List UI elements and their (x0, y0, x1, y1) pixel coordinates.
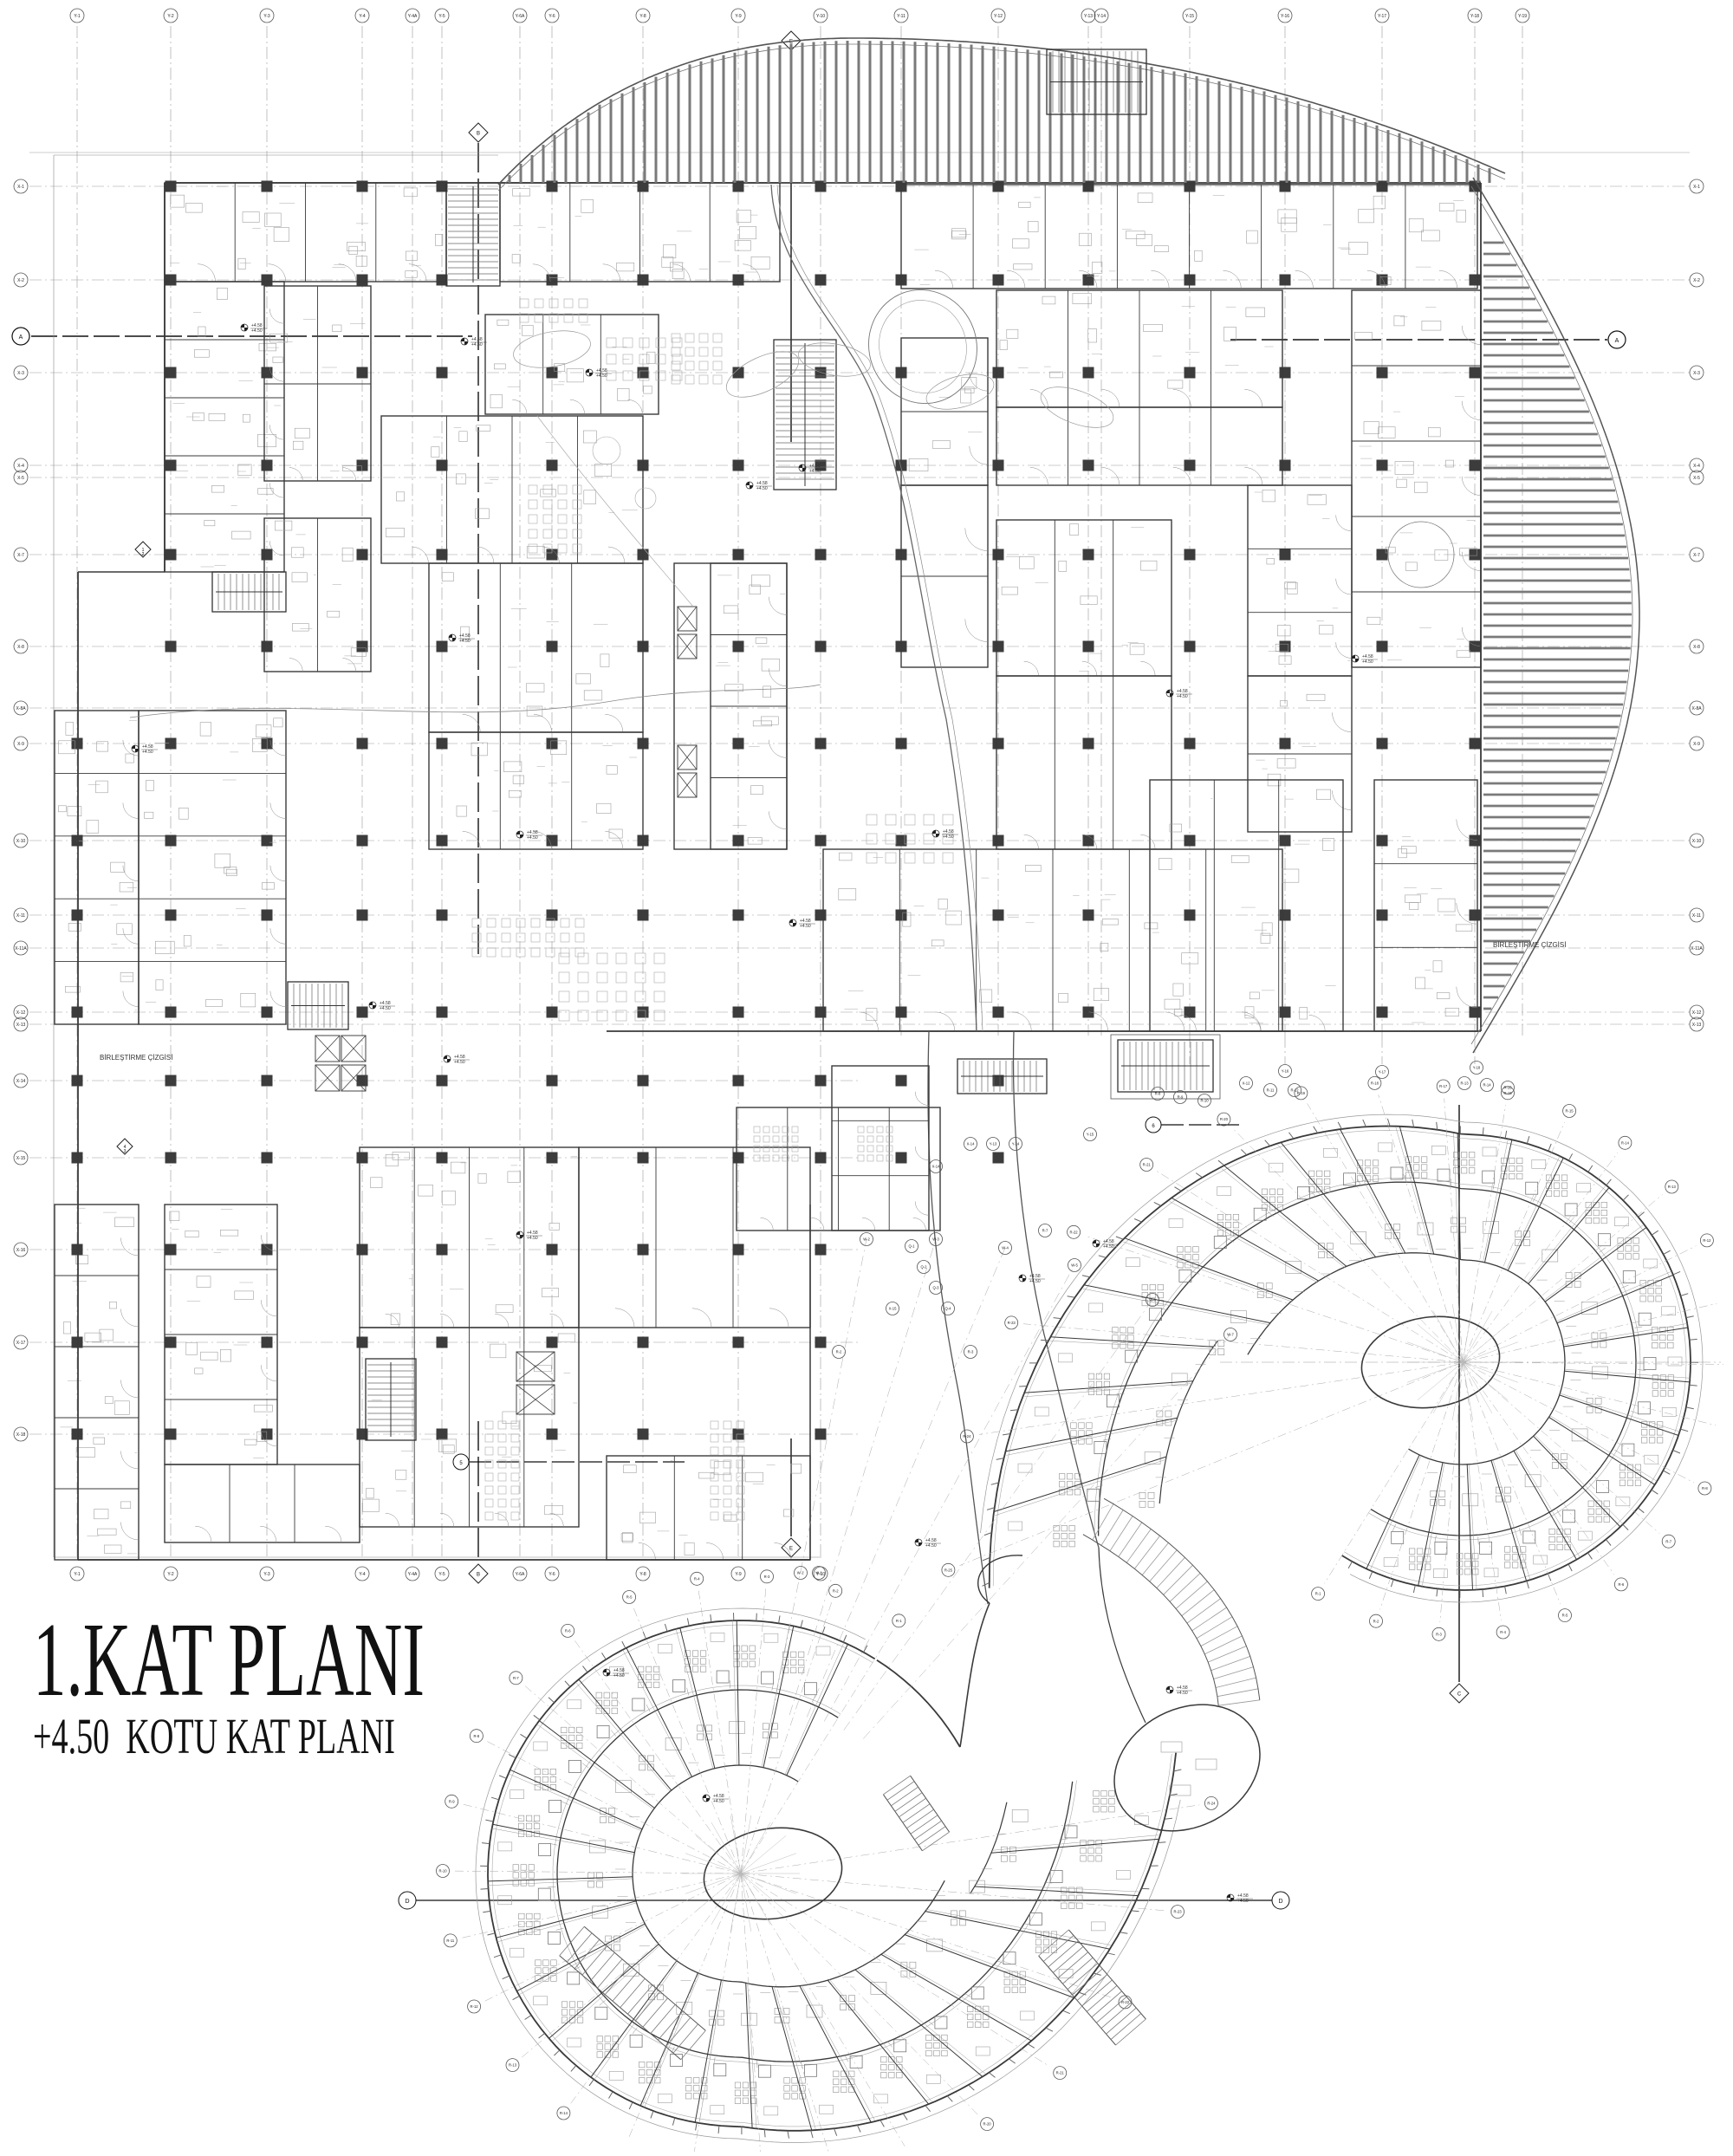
svg-text:Y-9: Y-9 (735, 1572, 742, 1577)
svg-text:Y-14: Y-14 (1012, 1142, 1020, 1146)
svg-text:R-7: R-7 (1665, 1539, 1671, 1543)
svg-text:R-14: R-14 (1483, 1083, 1491, 1088)
svg-text:X-3: X-3 (1693, 371, 1700, 376)
svg-text:R-6: R-6 (1619, 1582, 1625, 1587)
svg-text:R-15: R-15 (1566, 1109, 1574, 1114)
svg-text:Y-17: Y-17 (1378, 14, 1386, 19)
svg-text:R-11: R-11 (446, 1938, 454, 1943)
svg-text:R-12: R-12 (1290, 1088, 1299, 1093)
svg-text:Y-16: Y-16 (1281, 14, 1289, 19)
svg-text:R-21: R-21 (1056, 2071, 1065, 2075)
svg-text:Y-6A: Y-6A (516, 1572, 525, 1577)
svg-text:R-3: R-3 (1436, 1632, 1442, 1636)
svg-text:X-15: X-15 (16, 1156, 26, 1161)
svg-text:X-11A: X-11A (15, 946, 27, 951)
svg-text:+4.50: +4.50 (713, 1799, 724, 1804)
svg-text:X-8A: X-8A (16, 706, 26, 711)
svg-text:+4.50: +4.50 (142, 750, 153, 755)
svg-text:Q-2: Q-2 (921, 1265, 928, 1270)
svg-text:X-11: X-11 (1692, 913, 1701, 919)
svg-text:D: D (405, 1899, 409, 1905)
svg-text:R-2: R-2 (1373, 1619, 1379, 1623)
svg-text:X-9: X-9 (17, 742, 24, 747)
svg-text:A: A (19, 334, 23, 341)
svg-text:Y-4: Y-4 (359, 1572, 366, 1577)
svg-text:Y-10: Y-10 (816, 14, 825, 19)
svg-text:R-1: R-1 (896, 1619, 902, 1623)
svg-text:E: E (789, 1546, 793, 1551)
svg-text:R-24: R-24 (1207, 1802, 1216, 1806)
svg-text:R-23: R-23 (1173, 1910, 1182, 1914)
svg-text:+4.50: +4.50 (1177, 694, 1188, 699)
svg-text:+4.50: +4.50 (251, 328, 263, 334)
svg-text:Y-15: Y-15 (1087, 1133, 1094, 1137)
svg-text:X-18: X-18 (16, 1432, 26, 1438)
svg-text:R-13: R-13 (509, 2063, 517, 2068)
svg-text:R-3: R-3 (764, 1575, 770, 1579)
svg-text:+4.50: +4.50 (943, 834, 954, 840)
svg-text:Y-2: Y-2 (167, 1572, 174, 1577)
svg-text:+4.50: +4.50 (1103, 1244, 1114, 1250)
svg-text:1.KAT PLANI: 1.KAT PLANI (33, 1601, 425, 1718)
svg-text:Y-6: Y-6 (548, 1572, 555, 1577)
svg-text:R-4: R-4 (694, 1576, 700, 1581)
svg-text:Y-16: Y-16 (1282, 1069, 1289, 1074)
svg-text:R-4: R-4 (1500, 1630, 1506, 1634)
svg-text:R-13: R-13 (1460, 1081, 1469, 1086)
svg-text:R-3: R-3 (968, 1350, 974, 1354)
svg-text:+4.50 KOTU KAT PLANI: +4.50 KOTU KAT PLANI (33, 1708, 395, 1764)
svg-text:Y-5: Y-5 (438, 14, 445, 19)
svg-text:Q-1: Q-1 (909, 1244, 916, 1249)
svg-text:Y-12: Y-12 (994, 14, 1003, 19)
svg-text:Y-5: Y-5 (438, 1572, 445, 1577)
svg-text:+4.50: +4.50 (1362, 659, 1373, 665)
svg-text:Y-13: Y-13 (1084, 14, 1093, 19)
svg-text:Y-4A: Y-4A (408, 1572, 418, 1577)
svg-text:Y-13: Y-13 (990, 1142, 997, 1146)
svg-text:Y-1: Y-1 (74, 1572, 81, 1577)
svg-text:X-2: X-2 (1693, 278, 1700, 283)
svg-text:X-4: X-4 (1693, 464, 1700, 469)
svg-text:X-14: X-14 (967, 1142, 976, 1146)
svg-text:R-10: R-10 (1200, 1099, 1209, 1103)
svg-text:+4.50: +4.50 (809, 469, 821, 474)
svg-text:+4.50: +4.50 (471, 342, 483, 347)
svg-text:R-18: R-18 (1371, 1081, 1379, 1086)
svg-text:Y-2: Y-2 (167, 14, 174, 19)
svg-text:+4.50: +4.50 (527, 1236, 538, 1241)
svg-text:R-21: R-21 (1143, 1163, 1152, 1167)
svg-text:W-6: W-6 (1149, 1298, 1156, 1302)
svg-text:X-15: X-15 (889, 1307, 898, 1311)
svg-text:Y-6A: Y-6A (516, 14, 525, 19)
svg-text:R-14: R-14 (560, 2111, 568, 2115)
svg-text:R-22: R-22 (1070, 1230, 1079, 1234)
svg-text:X-4: X-4 (17, 464, 24, 469)
svg-text:+4.50: +4.50 (527, 835, 538, 841)
svg-text:Y-17: Y-17 (1379, 1070, 1386, 1075)
svg-text:D: D (1278, 1899, 1282, 1905)
svg-text:Y-11: Y-11 (897, 14, 905, 19)
svg-text:Q-3: Q-3 (933, 1286, 940, 1290)
svg-text:R-25: R-25 (944, 1568, 953, 1572)
svg-text:X-1: X-1 (17, 185, 24, 190)
svg-text:X-1: X-1 (1693, 185, 1700, 190)
svg-text:R-14: R-14 (1621, 1140, 1630, 1145)
svg-text:R-5: R-5 (626, 1595, 633, 1600)
svg-text:X-13: X-13 (16, 1023, 26, 1028)
svg-text:BİRLEŞTİRME ÇİZGİSİ: BİRLEŞTİRME ÇİZGİSİ (1493, 941, 1566, 949)
svg-text:W-4: W-4 (1002, 1246, 1009, 1250)
svg-text:Y-19: Y-19 (1518, 14, 1527, 19)
svg-text:R-17: R-17 (1439, 1084, 1448, 1088)
svg-text:X-7: X-7 (17, 553, 24, 558)
svg-text:X-14: X-14 (16, 1079, 26, 1084)
svg-text:Y-18: Y-18 (1473, 1066, 1481, 1070)
svg-text:R-9: R-9 (449, 1799, 455, 1803)
svg-text:B: B (477, 131, 480, 136)
svg-text:R-7: R-7 (1042, 1229, 1048, 1233)
svg-text:R-11: R-11 (1267, 1088, 1275, 1093)
svg-text:X-12: X-12 (1243, 1081, 1251, 1086)
svg-text:R-20: R-20 (1220, 1117, 1229, 1121)
svg-text:A: A (1615, 338, 1619, 344)
svg-text:C: C (1457, 1692, 1462, 1697)
svg-text:W-5: W-5 (1071, 1263, 1078, 1268)
svg-text:+4.50: +4.50 (800, 924, 811, 929)
svg-text:W-1': W-1' (797, 1571, 805, 1575)
svg-text:X-11: X-11 (16, 913, 25, 919)
svg-text:+4.50: +4.50 (454, 1060, 465, 1065)
svg-text:Y-9: Y-9 (735, 14, 742, 19)
svg-text:W-7: W-7 (1227, 1333, 1234, 1337)
svg-text:R-15: R-15 (1503, 1086, 1512, 1090)
svg-text:+4.50: +4.50 (596, 373, 607, 379)
svg-text:W-1: W-1 (815, 1571, 822, 1575)
svg-text:X-8A: X-8A (1691, 706, 1702, 711)
svg-text:X-13: X-13 (1692, 1023, 1702, 1028)
svg-text:+4.50: +4.50 (1177, 1691, 1188, 1696)
svg-text:X-14: X-14 (932, 1165, 941, 1169)
svg-text:X-5: X-5 (1693, 476, 1700, 481)
svg-text:W-3: W-3 (932, 1237, 939, 1242)
svg-text:+4.50: +4.50 (613, 1673, 625, 1679)
svg-text:R-1: R-1 (1315, 1592, 1321, 1596)
svg-text:R-20: R-20 (983, 2122, 992, 2127)
svg-text:X-16: X-16 (16, 1248, 26, 1253)
svg-text:R-13: R-13 (1668, 1185, 1677, 1189)
svg-text:X-12: X-12 (16, 1010, 26, 1016)
svg-text:Y-4: Y-4 (359, 14, 366, 19)
svg-text:2: 2 (142, 552, 145, 557)
svg-text:R-23: R-23 (1008, 1321, 1016, 1325)
svg-text:Y-8: Y-8 (639, 14, 646, 19)
svg-text:R-24: R-24 (963, 1434, 971, 1438)
svg-text:Y-6: Y-6 (548, 14, 555, 19)
svg-text:X-3: X-3 (17, 371, 24, 376)
svg-text:X-10: X-10 (1692, 839, 1702, 844)
svg-text:X-11A: X-11A (1691, 946, 1703, 951)
svg-text:+4.50: +4.50 (1029, 1279, 1041, 1284)
svg-text:X-7: X-7 (1693, 553, 1700, 558)
svg-text:Y-3: Y-3 (263, 1572, 270, 1577)
svg-text:X-5: X-5 (17, 476, 24, 481)
svg-text:R-8: R-8 (474, 1734, 480, 1738)
svg-text:R-9: R-9 (1178, 1095, 1184, 1100)
svg-text:R-8: R-8 (1155, 1092, 1161, 1096)
svg-text:R-5: R-5 (1562, 1614, 1568, 1618)
svg-text:X-2: X-2 (17, 278, 24, 283)
svg-text:W-2: W-2 (863, 1237, 870, 1242)
svg-text:+4.50: +4.50 (380, 1006, 391, 1011)
svg-text:Y-3: Y-3 (263, 14, 270, 19)
svg-text:R-12: R-12 (1703, 1238, 1711, 1243)
svg-text:Y-4A: Y-4A (408, 14, 418, 19)
svg-text:BİRLEŞTİRME ÇİZGİSİ: BİRLEŞTİRME ÇİZGİSİ (100, 1054, 172, 1062)
svg-text:+4.50: +4.50 (925, 1543, 937, 1549)
svg-text:R-10: R-10 (438, 1869, 447, 1874)
svg-text:R-8: R-8 (1702, 1486, 1708, 1490)
svg-text:Y-18: Y-18 (1470, 14, 1479, 19)
svg-text:R-6: R-6 (565, 1629, 571, 1633)
svg-text:X-9: X-9 (1693, 742, 1700, 747)
svg-text:R-12: R-12 (471, 2004, 479, 2009)
svg-text:X-17: X-17 (16, 1341, 26, 1346)
svg-text:Q-4: Q-4 (945, 1307, 952, 1311)
svg-text:+4.50: +4.50 (1237, 1899, 1249, 1904)
svg-text:3: 3 (124, 1149, 127, 1154)
svg-text:Y-1: Y-1 (74, 14, 81, 19)
svg-text:Y-15: Y-15 (1185, 14, 1194, 19)
svg-text:+4.50: +4.50 (756, 486, 768, 491)
svg-text:+4.50: +4.50 (459, 639, 471, 644)
svg-text:X-8: X-8 (1693, 645, 1700, 650)
svg-text:R-2: R-2 (833, 1588, 839, 1593)
svg-text:R-7: R-7 (513, 1676, 519, 1680)
svg-text:X-8: X-8 (17, 645, 24, 650)
svg-text:X-12: X-12 (1692, 1010, 1702, 1016)
svg-text:Y-8: Y-8 (639, 1572, 646, 1577)
svg-text:B: B (477, 1572, 480, 1577)
svg-text:Y-14: Y-14 (1097, 14, 1106, 19)
svg-text:R-2: R-2 (836, 1350, 842, 1354)
svg-text:X-10: X-10 (16, 839, 26, 844)
